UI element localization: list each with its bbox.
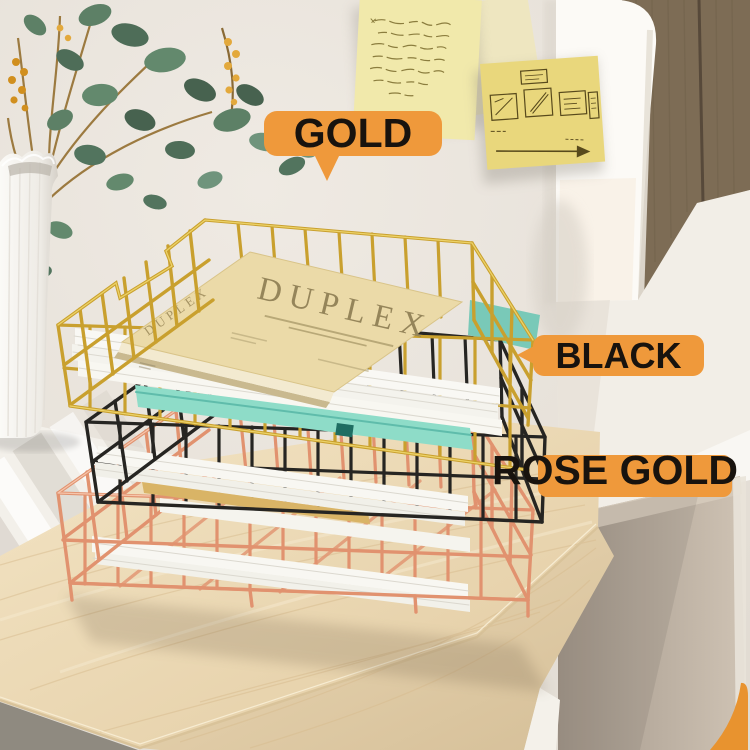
label-gold-pointer-icon (314, 154, 340, 181)
label-gold-text: GOLD (294, 110, 412, 157)
label-black: BLACK (533, 335, 704, 376)
label-rose-gold-text: ROSE GOLD (492, 447, 738, 494)
label-black-text: BLACK (556, 335, 682, 377)
label-black-pointer-icon (517, 346, 534, 364)
product-photo: DUPLEX DUPLEX (0, 0, 750, 750)
sticky-note-sketch (474, 56, 605, 184)
folder-clip (335, 423, 354, 437)
label-gold: GOLD (264, 111, 442, 156)
